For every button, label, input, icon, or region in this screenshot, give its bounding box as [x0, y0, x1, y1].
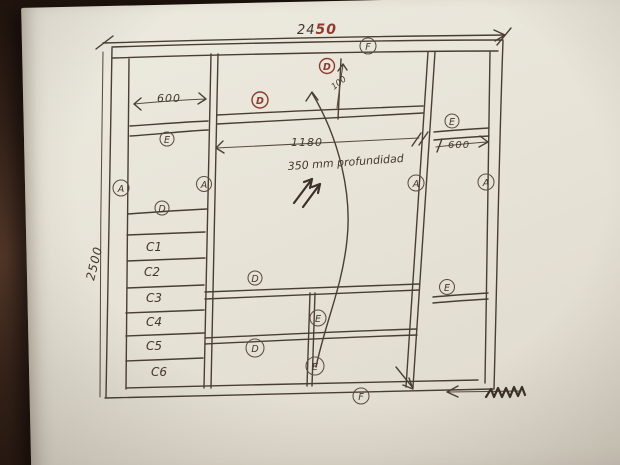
- marker-letter: A: [117, 184, 125, 195]
- marker-bottom-center-f: F: [353, 388, 369, 404]
- marker-letter: A: [482, 178, 490, 189]
- drawer-label-c1: C1: [146, 240, 162, 254]
- overall-width-dimension: 2450: [297, 22, 337, 38]
- marker-center-lower-e: E: [306, 357, 324, 375]
- right-shelf-lower-b: [433, 299, 488, 303]
- right-shelf-lower-a: [433, 293, 488, 297]
- top-rail-inner: [113, 51, 498, 58]
- marker-left-shelf-e: E: [160, 132, 174, 146]
- depth-note: 350 mm profundidad: [287, 152, 405, 173]
- bottom-right-scribble: [486, 387, 525, 397]
- overall-width-prefix: 24: [297, 23, 316, 38]
- right-stile-inner: [485, 52, 490, 383]
- bottom-right-extension-line: [448, 391, 521, 392]
- top-offset-dimension: 100: [330, 74, 349, 92]
- overall-width-emphasis: 50: [316, 22, 337, 38]
- marker-left-stile-a: A: [113, 180, 129, 196]
- marker-letter: E: [444, 283, 450, 294]
- marker-letter: F: [365, 42, 371, 53]
- marker-right-column-e: E: [440, 280, 455, 295]
- right-divider-line-b: [413, 52, 435, 387]
- center-1180-arrow-l: [216, 141, 224, 153]
- marker-letter: E: [164, 135, 170, 146]
- right-600-tick-l: [437, 139, 442, 152]
- marker-center-column-d: D: [248, 271, 262, 285]
- marker-letter: E: [312, 362, 318, 373]
- marker-right-stile-a: A: [478, 174, 494, 190]
- overall-height-dimension: 2500: [83, 245, 105, 282]
- marker-letter: E: [315, 314, 321, 325]
- marker-letter: D: [251, 274, 258, 285]
- marker-left-divider-a: A: [197, 177, 212, 192]
- drawer-stack: C1 C2 C3 C4 C5 C6: [126, 232, 205, 379]
- left-stile-outer: [106, 48, 112, 397]
- drawer-label-c3: C3: [146, 291, 162, 305]
- bottom-rail-inner: [126, 380, 478, 388]
- bottom-rail-outer: [105, 389, 493, 398]
- left-dimension-line: [100, 52, 103, 397]
- left-600-arrow-r: [198, 93, 206, 104]
- marker-left-column-d: D: [155, 201, 169, 215]
- center-shelf-upper-b: [217, 113, 423, 124]
- wardrobe-sketch: C1 C2 C3 C4 C5 C6 2450 2500 600 1180 600: [0, 0, 620, 465]
- center-section-width: 1180: [291, 136, 323, 149]
- marker-letter: D: [256, 96, 264, 107]
- left-stile-inner: [126, 59, 129, 389]
- marker-letter: D: [251, 344, 258, 355]
- right-section-width: 600: [448, 140, 470, 151]
- drawer-line-2: [127, 258, 205, 261]
- left-shelf-a: [130, 121, 208, 126]
- photo-background: C1 C2 C3 C4 C5 C6 2450 2500 600 1180 600: [0, 0, 620, 465]
- right-shelf-a: [434, 128, 489, 132]
- right-stile-outer: [494, 41, 503, 389]
- marker-letter: A: [200, 180, 208, 191]
- drawer-line-6: [126, 358, 203, 361]
- marker-right-shelf-e: E: [445, 114, 459, 128]
- marker-top-left-red-d: D: [252, 92, 268, 108]
- marker-letter: D: [158, 204, 165, 215]
- drawer-label-c5: C5: [146, 339, 162, 353]
- drawer-label-c4: C4: [146, 315, 162, 329]
- marker-letter: A: [412, 179, 420, 190]
- drawer-line-4: [126, 310, 204, 313]
- drawer-line-1: [127, 232, 205, 235]
- marker-center-divider-a: A: [408, 175, 424, 191]
- drawer-line-3: [127, 285, 204, 288]
- drawer-label-c6: C6: [151, 365, 167, 379]
- marker-top-upper-red-d: D: [320, 59, 335, 74]
- top-dimension-slash-right: [497, 28, 511, 45]
- drawer-line-5: [126, 333, 204, 336]
- marker-letter: E: [449, 117, 455, 128]
- left-section-width: 600: [157, 92, 181, 105]
- marker-letter: D: [323, 62, 331, 73]
- bottom-right-diagonal-arrowhead: [403, 378, 413, 389]
- marker-letter: F: [358, 392, 364, 403]
- drawer-label-c2: C2: [144, 265, 160, 279]
- right-600-arrow-r: [479, 136, 488, 147]
- marker-center-lower-upper-e: E: [310, 310, 326, 326]
